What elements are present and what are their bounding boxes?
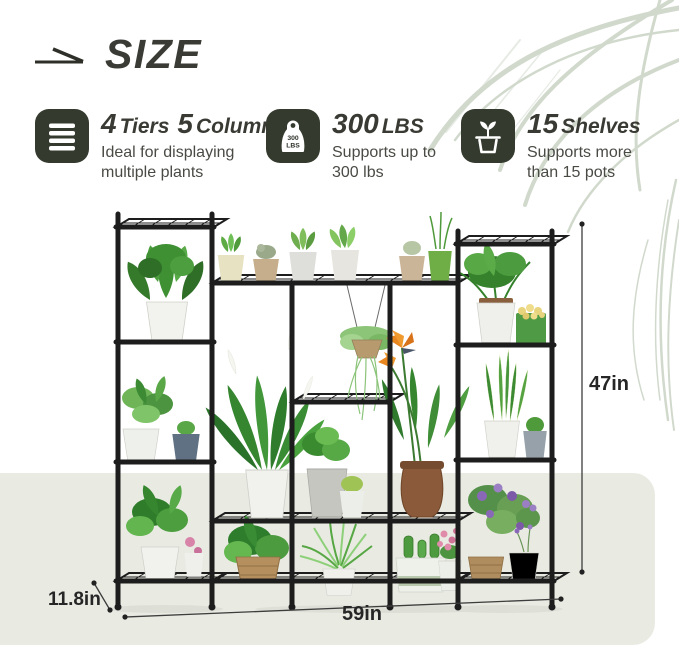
size-header: SIZE <box>33 34 202 75</box>
feature-num: 5 <box>177 108 193 139</box>
potted-plant-icon <box>461 109 515 163</box>
feature-shelves: 15Shelves Supports more than 15 pots <box>461 109 649 182</box>
weight-icon: 300 LBS <box>266 109 320 163</box>
feature-subtitle: Supports more than 15 pots <box>527 143 649 182</box>
infographic-artwork <box>0 0 679 650</box>
feature-subtitle: Ideal for displaying multiple plants <box>101 143 294 182</box>
plant-center <box>302 427 364 517</box>
feature-tiers-columns: 4Tiers5Columns Ideal for displaying mult… <box>35 109 294 182</box>
feature-title: 4Tiers5Columns <box>101 109 294 138</box>
plant-fiddle-leaf <box>122 244 209 340</box>
feature-word: Shelves <box>561 115 640 138</box>
right-arrow-icon <box>33 43 91 67</box>
feature-subtitle: Supports up to 300 lbs <box>332 143 436 182</box>
depth-dimension-label: 11.8in <box>48 589 101 611</box>
svg-text:300: 300 <box>287 135 299 142</box>
plant-dieffenbachia <box>122 375 200 461</box>
list-icon <box>35 109 89 163</box>
feature-title: 300LBS <box>332 109 436 138</box>
height-dimension-label: 47in <box>589 373 629 396</box>
product-infographic: SIZE 4Tiers5Columns Ideal for displaying… <box>0 0 679 650</box>
feature-num: 15 <box>527 108 558 139</box>
feature-word: LBS <box>382 115 424 138</box>
plant-snake <box>484 350 546 457</box>
succulent-row <box>218 212 452 281</box>
feature-num: 4 <box>101 108 117 139</box>
feature-title: 15Shelves <box>527 109 649 138</box>
width-dimension-label: 59in <box>342 603 382 626</box>
page-title: SIZE <box>105 34 202 75</box>
feature-word: Tiers <box>120 115 170 138</box>
feature-weight-capacity: 300 LBS 300LBS Supports up to 300 lbs <box>266 109 436 182</box>
hanging-basket <box>340 281 392 420</box>
plant-palm-roses <box>458 242 546 344</box>
feature-num: 300 <box>332 108 379 139</box>
svg-text:LBS: LBS <box>286 143 300 150</box>
